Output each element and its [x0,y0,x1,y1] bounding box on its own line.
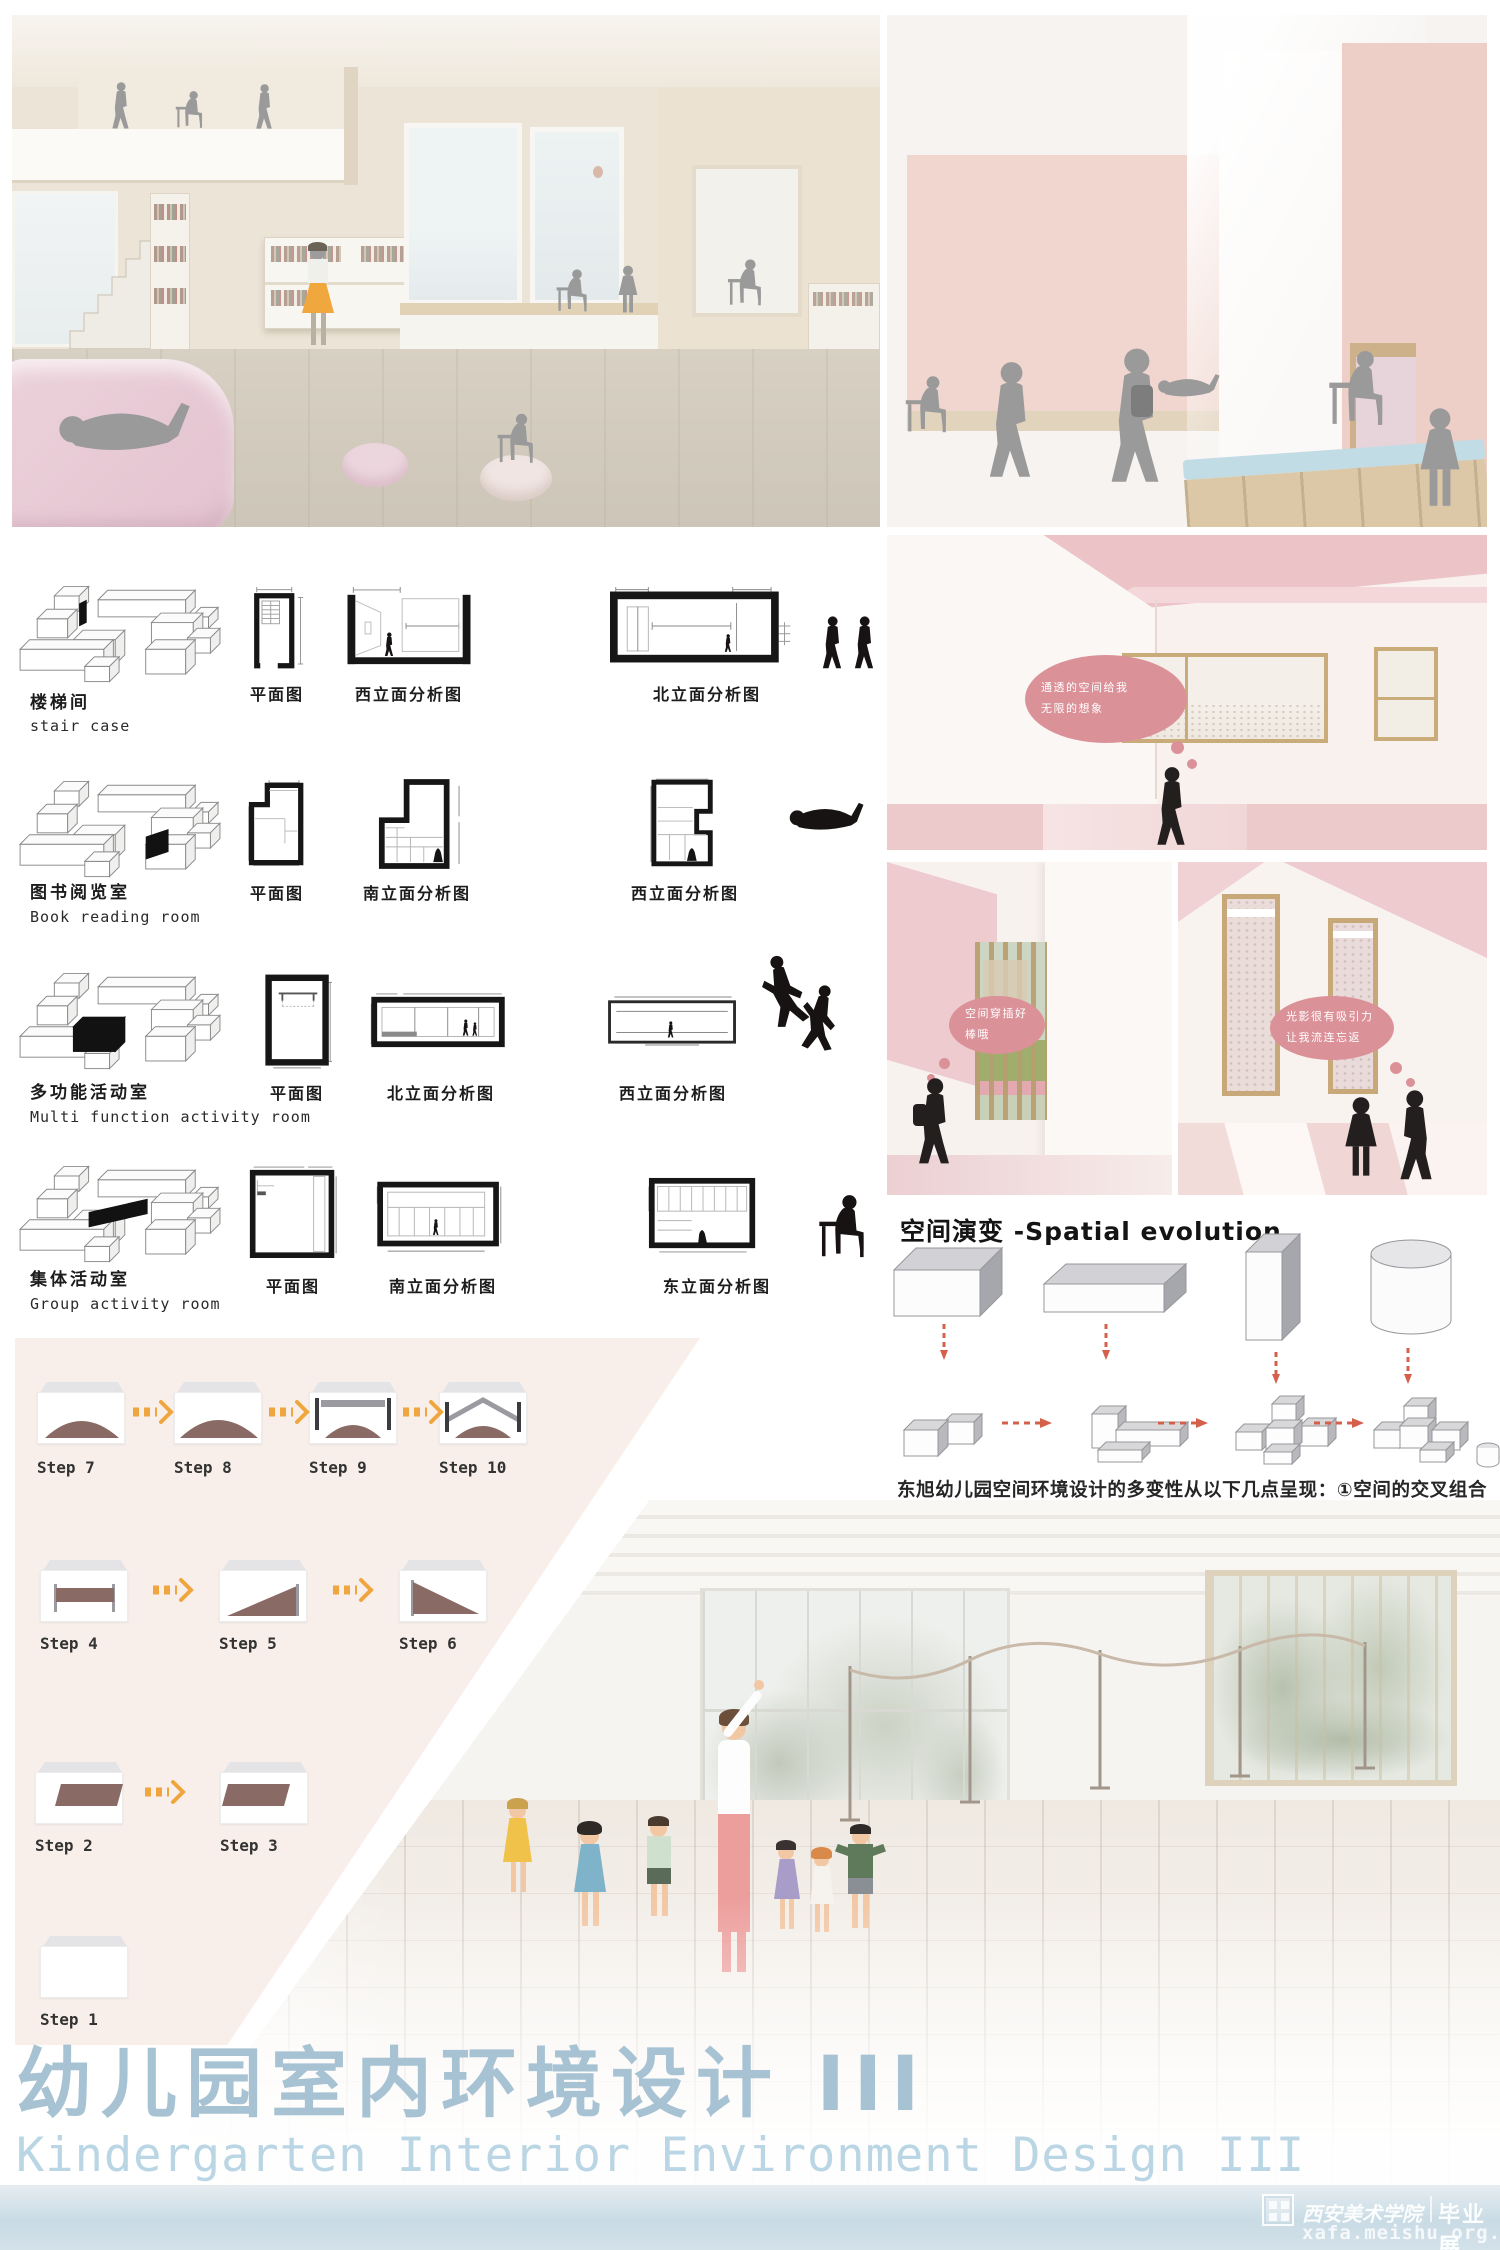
seal-icon [1262,2194,1294,2226]
figure-caption: 西立面分析图 [620,880,750,904]
sitting-kid-silhouette [814,1191,876,1263]
room-name-en: Group activity room [30,1295,221,1313]
shape-cylinder [1366,1234,1456,1342]
kids-silhouettes [818,615,878,671]
plan-figure [248,585,304,673]
thought-dot [1406,1078,1415,1087]
room-name-en: stair case [30,717,130,735]
watermark: 西安美术学院 毕业展 xafa.meishu.org.cn [1262,2192,1492,2244]
step-arrow [401,1400,445,1424]
render-courtyard-opening: 空间穿插好 棒哦 [887,862,1172,1195]
floor-light-stripes [1178,1123,1487,1195]
spatial-evolution-section: 空间演变 -Spatial evolution [890,1212,1490,1412]
room-name-zh: 楼梯间 [30,688,90,713]
figure-caption: 平面图 [248,1273,338,1297]
west-elevation-figure [345,587,473,669]
step-label: Step 10 [439,1458,506,1477]
mezzanine-column [344,67,358,185]
right-low-shelf [808,283,880,351]
pouf-kid [492,411,544,467]
step-label: Step 8 [174,1458,232,1477]
step-label: Step 5 [219,1634,277,1653]
room-row-stair-case: 楼梯间 stair case 平面图 西立面分析图 北立面分析图 [0,575,880,760]
boy-silhouette [1392,1088,1440,1184]
girl-silhouette [1338,1092,1384,1184]
speech-bubble: 通透的空间给我 无限的想象 [1025,655,1187,743]
right-arrow [1002,1416,1054,1430]
white-wall-right [1045,862,1172,1195]
side-window [1374,647,1438,741]
step-label: Step 4 [40,1634,98,1653]
room-row-multi-function: 多功能活动室 Multi function activity room 平面图 … [0,962,880,1152]
bubble-line: 光影很有吸引力 [1286,1007,1378,1028]
cluster-2 [1052,1390,1192,1470]
step-arrow [143,1780,187,1804]
shape-slab [1040,1258,1190,1316]
bubble-line: 无限的想象 [1041,699,1171,720]
step-arrow [151,1578,195,1602]
step-arrow [331,1578,375,1602]
room-name-en: Book reading room [30,908,201,926]
down-arrow [938,1324,950,1362]
step-tile-1 [38,1936,130,1998]
room-name-zh: 多功能活动室 [30,1078,150,1103]
poster-title-en: Kindergarten Interior Environment Design… [16,2128,1305,2183]
bubble-line: 通透的空间给我 [1041,678,1171,699]
room-name-zh: 集体活动室 [30,1265,130,1290]
west-elevation-figure [650,778,720,868]
room-name-zh: 图书阅览室 [30,878,130,903]
step-label: Step 3 [220,1836,278,1855]
shape-tall-box [1242,1226,1312,1346]
down-arrow [1402,1348,1414,1386]
render-reading-room [12,15,880,527]
step-label: Step 7 [37,1458,95,1477]
walking-boy-silhouette [1149,765,1193,849]
north-elevation-figure [610,587,796,667]
room-row-book-reading: 图书阅览室 Book reading room 平面图 南立面分析图 西立面分析… [0,770,880,955]
figure-caption: 平面图 [232,880,322,904]
west-elevation-figure [606,996,740,1046]
right-opening [692,165,802,317]
step-tile-9 [307,1382,399,1444]
cluster-1 [890,1396,1000,1466]
figure-caption: 西立面分析图 [608,1080,738,1104]
step-tile-4 [38,1560,130,1622]
figure-caption: 平面图 [252,1080,342,1104]
bubble-line: 空间穿插好 [965,1004,1029,1025]
figure-caption: 南立面分析图 [352,880,482,904]
mezzanine-kids-silhouettes [102,81,322,131]
thought-dot [939,1058,950,1069]
room-name-en: Multi function activity room [30,1108,311,1126]
lying-reading-girl [52,393,202,459]
plan-figure [248,778,306,870]
render-pink-lounge [887,15,1487,527]
kid-far-left [901,371,957,439]
figure-caption: 东立面分析图 [652,1273,782,1297]
north-elevation-figure [370,992,508,1050]
evolution-clusters [890,1390,1490,1470]
east-elevation-figure [648,1175,758,1253]
poster-title-zh: 幼儿园室内环境设计 III [16,2022,928,2132]
figure-caption: 北立面分析图 [376,1080,506,1104]
step-tile-8 [172,1382,264,1444]
step-tile-7 [35,1382,127,1444]
shape-box [890,1242,1010,1322]
watermark-url: xafa.meishu.org.cn [1302,2222,1500,2244]
step-label: Step 6 [399,1634,457,1653]
south-elevation-figure [376,1177,504,1253]
tall-bookshelf [150,193,190,351]
down-arrow [1100,1324,1112,1362]
figure-caption: 平面图 [232,681,322,705]
down-arrow [1270,1352,1282,1386]
kid-standing [979,359,1041,483]
floor-highlight [1043,804,1247,850]
reading-kid-silhouette [786,796,870,836]
kid-cross-legged [1323,341,1397,437]
figure-caption: 西立面分析图 [344,681,474,705]
room-row-group-activity: 集体活动室 Group activity room 平面图 南立面分析图 东立面… [0,1155,880,1335]
big-window-left [404,123,522,305]
step-label: Step 2 [35,1836,93,1855]
thought-dot [1390,1062,1402,1074]
books-row [154,288,186,304]
plan-figure [264,972,332,1070]
bubble-line: 让我流连忘返 [1286,1028,1378,1049]
speech-bubble: 空间穿插好 棒哦 [949,996,1045,1054]
watermark-divider [1430,2196,1432,2222]
step-tile-6 [397,1560,489,1622]
render-corridor-window: 通透的空间给我 无限的想象 [887,535,1487,850]
pink-ceiling-wedge [1283,862,1487,958]
cluster-3 [1208,1390,1348,1474]
step-arrow [131,1400,175,1424]
step-label: Step 9 [309,1458,367,1477]
books-row [154,246,186,262]
step-tile-5 [217,1560,309,1622]
books-row [154,204,186,220]
step-tile-2 [33,1762,125,1824]
backpack [913,1104,927,1126]
step-tile-3 [218,1762,310,1824]
balloon-decal [593,166,603,178]
plan-figure [248,1165,338,1261]
figure-caption: 北立面分析图 [642,681,772,705]
right-arrow [1158,1416,1210,1430]
step-tile-10 [437,1382,529,1444]
bubble-line: 棒哦 [965,1025,1029,1046]
right-arrow [1314,1416,1366,1430]
render-light-windows: 光影很有吸引力 让我流连忘返 [1178,862,1487,1195]
kid-on-ledge [1155,367,1225,403]
staircase [64,211,156,351]
south-elevation-figure [378,776,460,872]
mezzanine-parapet [12,129,344,183]
step-arrow [267,1400,311,1424]
backpack [1131,385,1153,417]
pink-ceiling-light [1103,587,1487,603]
window-seat-kids [552,263,662,315]
tall-window-left [1222,894,1280,1096]
speech-bubble: 光影很有吸引力 让我流连忘返 [1270,996,1394,1060]
poster-board: 楼梯间 stair case 平面图 西立面分析图 北立面分析图 图书阅览室 B… [0,0,1500,2250]
girl-reading [1411,407,1469,511]
girl-yellow-skirt [300,245,336,351]
pink-pouf [342,443,408,487]
thought-dot [1171,741,1184,754]
cluster-4 [1360,1390,1500,1474]
figure-caption: 南立面分析图 [378,1273,508,1297]
